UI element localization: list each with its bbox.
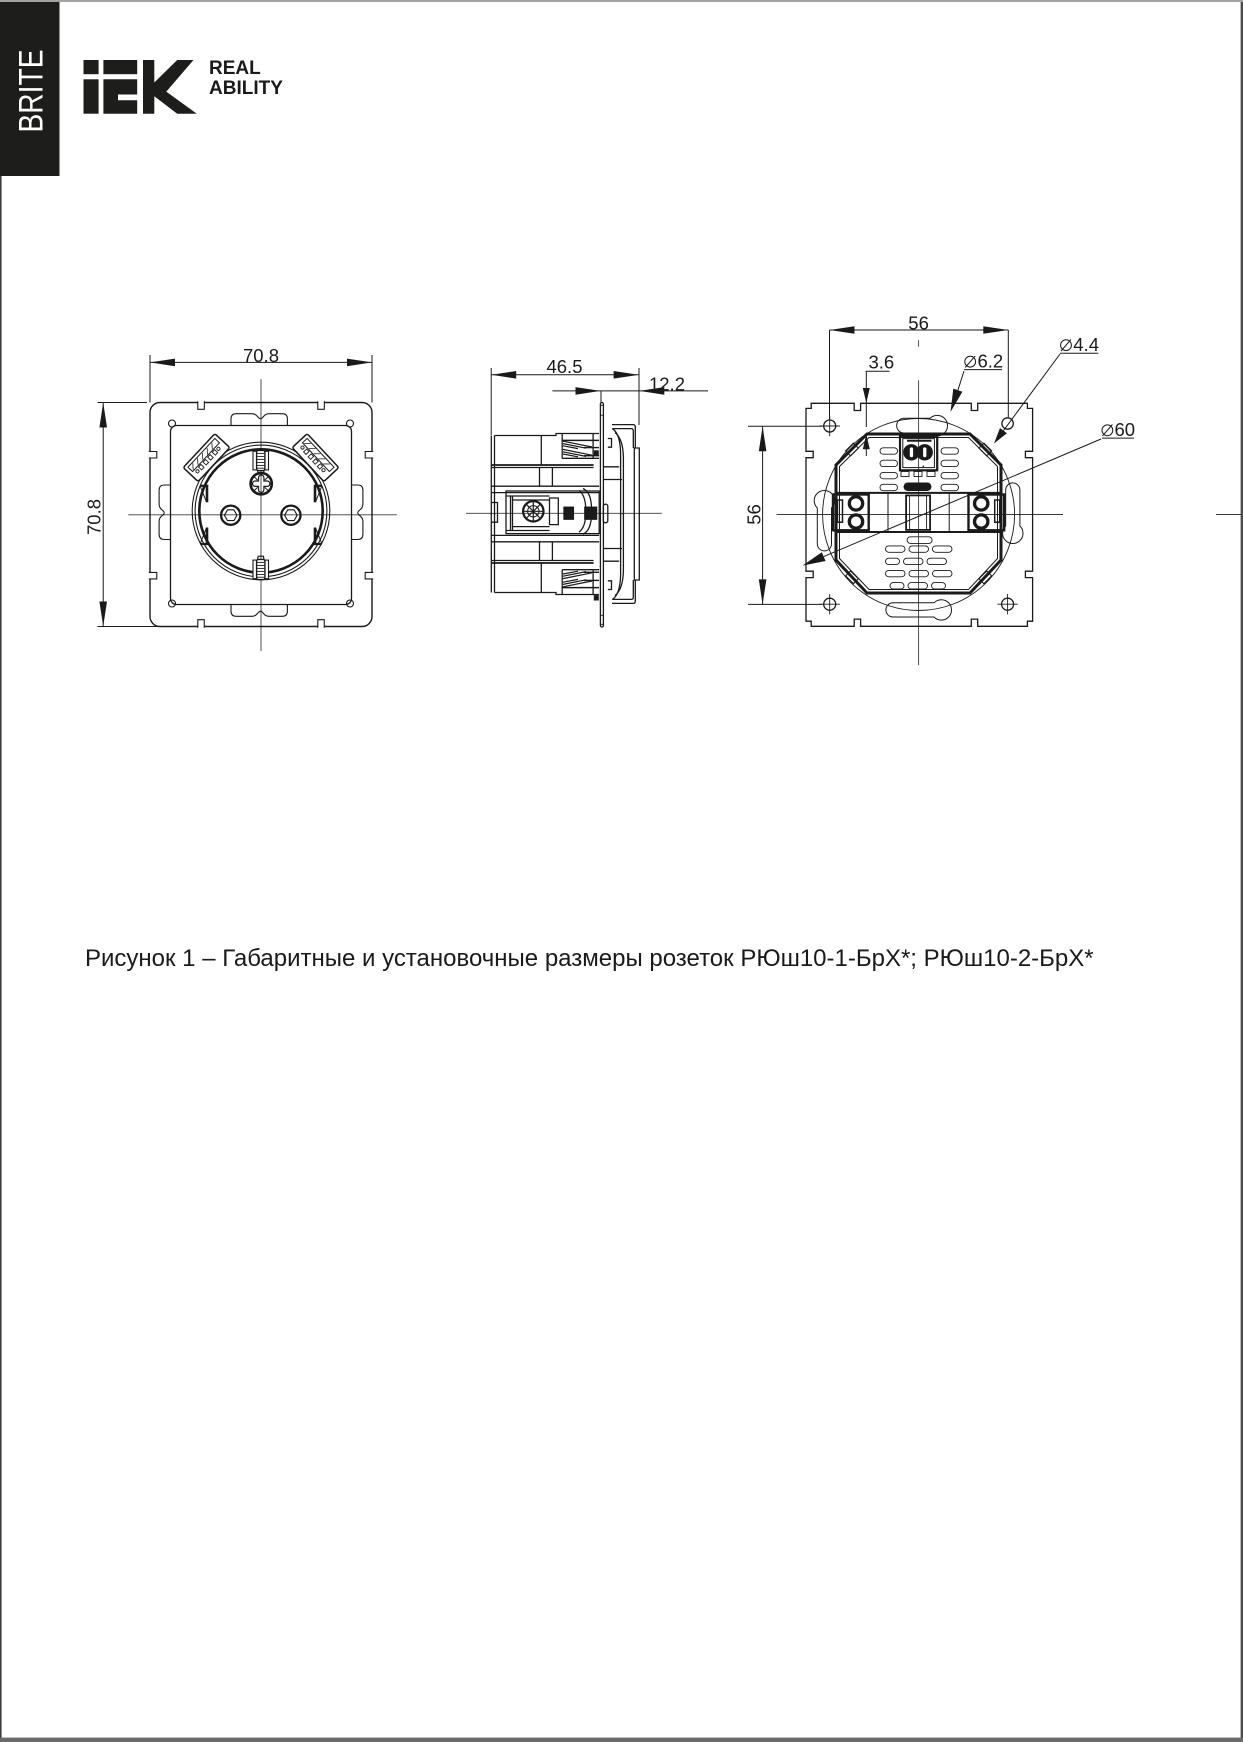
svg-text:REAL: REAL (209, 58, 261, 79)
svg-text:56: 56 (908, 312, 929, 333)
svg-text:70.8: 70.8 (243, 345, 279, 366)
svg-text:BRITE: BRITE (12, 50, 50, 133)
svg-text:70.8: 70.8 (84, 499, 105, 535)
svg-text:46.5: 46.5 (546, 356, 582, 377)
svg-text:Рисунок 1 – Габаритные и устан: Рисунок 1 – Габаритные и установочные ра… (85, 945, 1094, 972)
svg-text:ABILITY: ABILITY (209, 78, 283, 99)
svg-text:4.4: 4.4 (1073, 334, 1099, 355)
svg-text:3.6: 3.6 (869, 351, 895, 372)
svg-text:56: 56 (743, 504, 764, 525)
svg-text:6.2: 6.2 (978, 351, 1004, 372)
svg-text:60: 60 (1115, 419, 1136, 440)
svg-text:12.2: 12.2 (649, 373, 685, 394)
